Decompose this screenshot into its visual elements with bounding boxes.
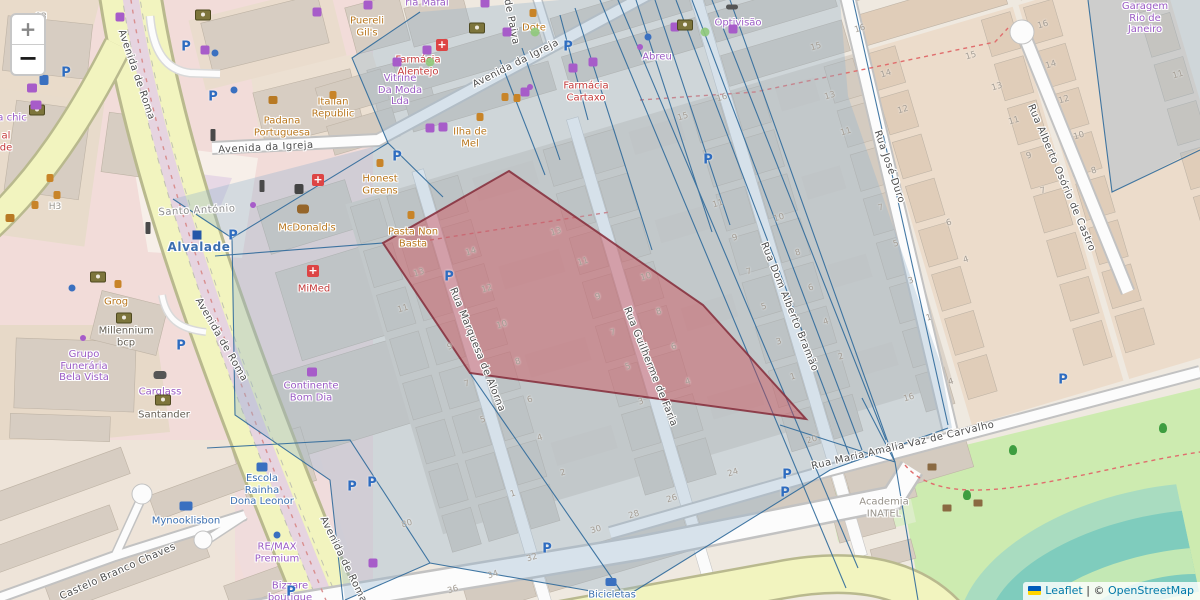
- map-canvas[interactable]: Avenida de RomaAvenida de RomaAvenida de…: [0, 0, 1200, 600]
- attribution-bar: Leaflet | © OpenStreetMap: [1023, 582, 1200, 600]
- map-tiles: [0, 0, 1200, 600]
- attribution-divider: |: [1086, 584, 1090, 597]
- zoom-in-button[interactable]: +: [12, 15, 44, 44]
- ukraine-flag-icon: [1028, 586, 1041, 595]
- osm-link[interactable]: OpenStreetMap: [1108, 584, 1194, 597]
- copyright-symbol: ©: [1093, 584, 1104, 597]
- leaflet-link[interactable]: Leaflet: [1045, 584, 1082, 597]
- zoom-control: + −: [10, 13, 46, 76]
- zoom-out-button[interactable]: −: [12, 44, 44, 74]
